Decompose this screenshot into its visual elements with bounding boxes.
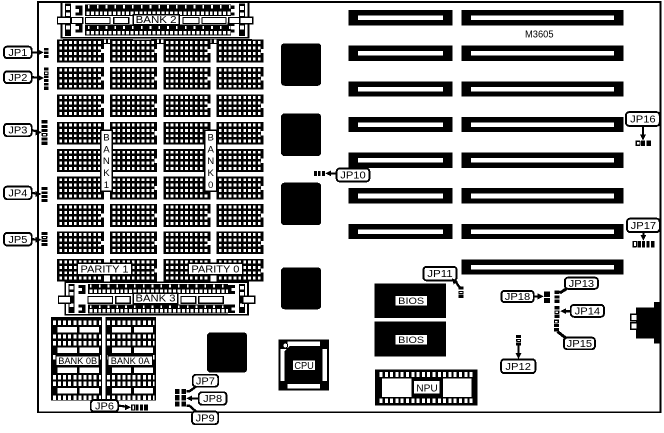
svg-text:JP17: JP17 xyxy=(631,221,657,232)
svg-text:BANK 0A: BANK 0A xyxy=(111,356,151,367)
svg-text:PARITY 0: PARITY 0 xyxy=(191,265,239,276)
svg-text:JP8: JP8 xyxy=(203,394,222,405)
svg-text:A: A xyxy=(207,144,214,155)
svg-text:JP15: JP15 xyxy=(567,339,593,350)
svg-text:K: K xyxy=(103,168,110,179)
svg-text:BIOS: BIOS xyxy=(398,296,424,307)
svg-text:JP9: JP9 xyxy=(196,414,215,425)
svg-text:JP5: JP5 xyxy=(8,235,27,246)
svg-text:M3605: M3605 xyxy=(525,30,554,41)
svg-text:B: B xyxy=(103,132,109,143)
svg-text:N: N xyxy=(207,156,214,167)
svg-text:K: K xyxy=(207,168,214,179)
svg-text:BANK 2: BANK 2 xyxy=(136,15,177,26)
svg-text:JP4: JP4 xyxy=(8,189,27,200)
svg-text:N: N xyxy=(103,156,110,167)
svg-text:PARITY 1: PARITY 1 xyxy=(81,265,129,276)
svg-text:BANK 0B: BANK 0B xyxy=(58,356,97,367)
svg-text:JP11: JP11 xyxy=(427,269,453,280)
svg-text:B: B xyxy=(207,132,213,143)
svg-text:BANK 3: BANK 3 xyxy=(136,294,176,305)
svg-text:JP13: JP13 xyxy=(569,279,595,290)
svg-text:JP14: JP14 xyxy=(575,306,601,317)
svg-text:JP16: JP16 xyxy=(630,115,656,126)
svg-text:JP6: JP6 xyxy=(95,401,114,412)
svg-text:CPU: CPU xyxy=(294,361,314,372)
svg-text:JP18: JP18 xyxy=(505,292,531,303)
svg-text:JP12: JP12 xyxy=(505,362,531,373)
svg-text:0: 0 xyxy=(208,180,213,191)
svg-text:NPU: NPU xyxy=(416,383,438,394)
svg-text:JP3: JP3 xyxy=(8,126,27,137)
svg-text:JP10: JP10 xyxy=(340,171,366,182)
svg-text:JP1: JP1 xyxy=(8,48,27,59)
svg-text:1: 1 xyxy=(104,180,109,191)
svg-text:A: A xyxy=(103,144,110,155)
svg-text:BIOS: BIOS xyxy=(398,335,424,346)
svg-text:JP2: JP2 xyxy=(8,73,27,84)
svg-text:JP7: JP7 xyxy=(196,376,215,387)
